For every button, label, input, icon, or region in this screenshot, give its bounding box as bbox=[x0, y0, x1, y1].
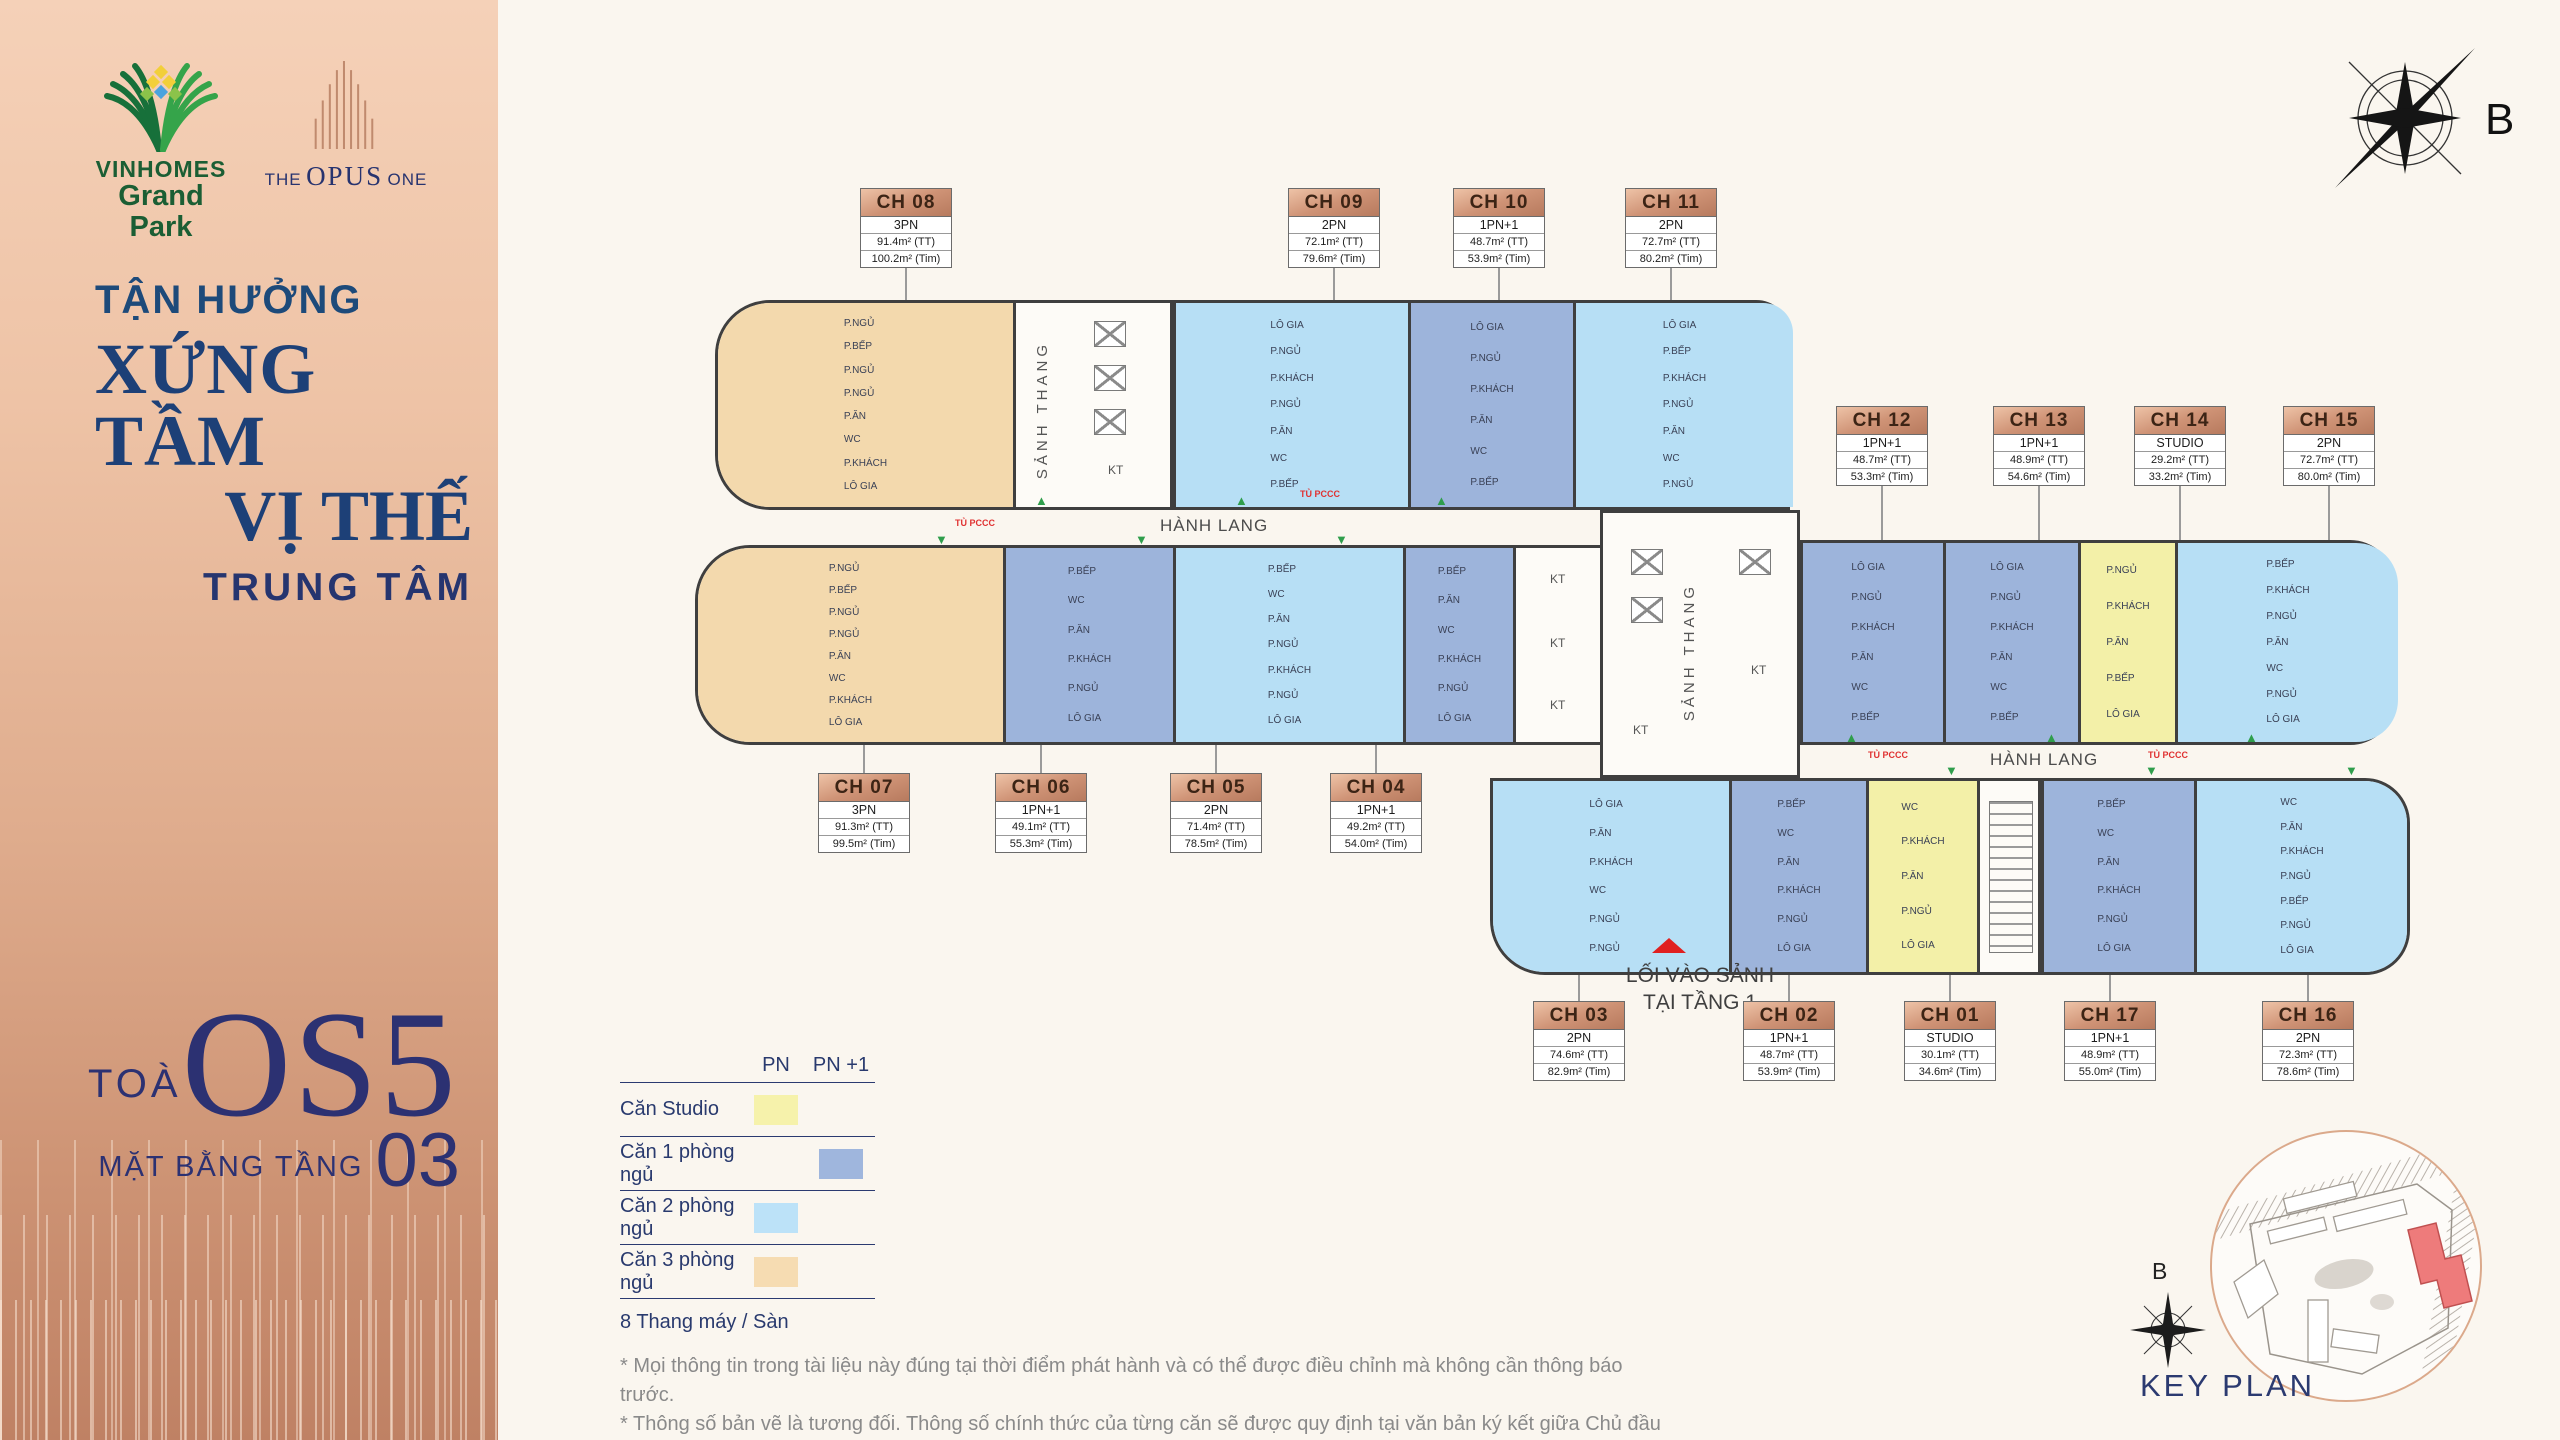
room-label: LÔ GIA bbox=[1470, 322, 1513, 333]
door-marker-icon: ▲ bbox=[1435, 494, 1448, 507]
core-central-lobby: SẢNH THANG KT KT bbox=[1600, 510, 1800, 778]
legend-row-2pn: Căn 2 phòng ngủ bbox=[620, 1191, 875, 1245]
unit-area-tim: 33.2m² (Tim) bbox=[2135, 469, 2225, 485]
door-marker-icon: ▲ bbox=[1035, 494, 1048, 507]
legend-row-3pn: Căn 3 phòng ngủ bbox=[620, 1245, 875, 1299]
room-label: P.NGỦ bbox=[2266, 611, 2309, 622]
room-label: WC bbox=[2097, 828, 2140, 839]
room-label: P.KHÁCH bbox=[1990, 622, 2033, 633]
room-label: P.NGỦ bbox=[1068, 683, 1111, 694]
room-label: P.KHÁCH bbox=[1851, 622, 1894, 633]
unit-area-tt: 49.1m² (TT) bbox=[996, 819, 1086, 836]
legend-col-pn: PN bbox=[745, 1054, 807, 1077]
room-label: P.NGỦ bbox=[1268, 690, 1311, 701]
shaft-label: KT bbox=[1550, 636, 1565, 650]
unit-area-tt: 72.7m² (TT) bbox=[2284, 452, 2374, 469]
label-connector bbox=[2179, 482, 2181, 540]
unit-id: CH 13 bbox=[1994, 407, 2084, 435]
unit-label-ch09: CH 09 2PN 72.1m² (TT) 79.6m² (Tim) bbox=[1288, 188, 1380, 268]
door-marker-icon: ▼ bbox=[1135, 533, 1148, 546]
room-label: P.KHÁCH bbox=[829, 695, 872, 706]
two-bedroom-color-swatch bbox=[754, 1203, 798, 1233]
shaft-label: KT bbox=[1751, 663, 1766, 677]
keyplan bbox=[2210, 1130, 2482, 1402]
room-label: WC bbox=[2266, 663, 2309, 674]
vinhomes-logo: VINHOMES Grand Park bbox=[86, 52, 236, 242]
unit-area-tim: 78.6m² (Tim) bbox=[2263, 1064, 2353, 1080]
unit-ch15: P.BẾPP.KHÁCHP.NGỦP.ĂNWCP.NGỦLÔ GIA bbox=[2175, 543, 2398, 742]
room-label: P.NGỦ bbox=[1438, 683, 1481, 694]
entry-note-line1: LỐI VÀO SẢNH bbox=[1595, 962, 1805, 989]
room-label: P.BẾP bbox=[1268, 564, 1311, 575]
keyplan-north-label: B bbox=[2152, 1258, 2167, 1285]
room-label: P.BẾP bbox=[1990, 712, 2033, 723]
unit-id: CH 02 bbox=[1744, 1002, 1834, 1030]
room-label: P.BẾP bbox=[1851, 712, 1894, 723]
unit-area-tim: 53.3m² (Tim) bbox=[1837, 469, 1927, 485]
legend-label: Căn 3 phòng ngủ bbox=[620, 1249, 745, 1295]
room-label: LÔ GIA bbox=[1777, 943, 1820, 954]
room-label: P.BẾP bbox=[2280, 896, 2323, 907]
room-label: LÔ GIA bbox=[2280, 945, 2323, 956]
unit-ch10: LÔ GIAP.NGỦP.KHÁCHP.ĂNWCP.BẾP bbox=[1408, 303, 1573, 507]
unit-ch04: P.BẾPP.ĂNWCP.KHÁCHP.NGỦLÔ GIA bbox=[1403, 548, 1513, 742]
room-label: P.NGỦ bbox=[829, 629, 872, 640]
label-connector bbox=[2038, 482, 2040, 540]
wing-top-left: P.NGỦP.BẾPP.NGỦP.NGỦP.ĂNWCP.KHÁCHLÔ GIA … bbox=[715, 300, 1790, 510]
room-label: P.KHÁCH bbox=[1663, 373, 1706, 384]
unit-area-tt: 72.1m² (TT) bbox=[1289, 234, 1379, 251]
unit-area-tim: 82.9m² (Tim) bbox=[1534, 1064, 1624, 1080]
label-connector bbox=[1215, 745, 1217, 773]
unit-area-tim: 53.9m² (Tim) bbox=[1744, 1064, 1834, 1080]
tagline-line3: VỊ THẾ bbox=[95, 477, 473, 556]
room-label: P.KHÁCH bbox=[1438, 654, 1481, 665]
door-marker-icon: ▼ bbox=[2345, 764, 2358, 777]
unit-id: CH 17 bbox=[2065, 1002, 2155, 1030]
room-label: P.ĂN bbox=[1470, 415, 1513, 426]
unit-ch07: P.NGỦP.BẾPP.NGỦP.NGỦP.ĂNWCP.KHÁCHLÔ GIA bbox=[698, 548, 1003, 742]
lobby-label: SẢNH THANG bbox=[1681, 583, 1698, 721]
room-label: P.ĂN bbox=[1589, 828, 1632, 839]
room-label: P.ĂN bbox=[829, 651, 872, 662]
core-shafts-mid: KT KT KT bbox=[1513, 548, 1603, 742]
unit-id: CH 10 bbox=[1454, 189, 1544, 217]
room-label: P.BẾP bbox=[829, 585, 872, 596]
room-label: P.NGỦ bbox=[1268, 639, 1311, 650]
room-label: P.KHÁCH bbox=[2266, 585, 2309, 596]
elevator-icon bbox=[1739, 549, 1771, 575]
room-label: P.NGỦ bbox=[1663, 399, 1706, 410]
shaft-label: KT bbox=[1633, 723, 1648, 737]
label-connector bbox=[1578, 975, 1580, 1001]
room-label: WC bbox=[1777, 828, 1820, 839]
room-label: WC bbox=[1663, 453, 1706, 464]
lobby-label: SẢNH THANG bbox=[1034, 341, 1051, 479]
room-label: LÔ GIA bbox=[2106, 709, 2149, 720]
opus-tower-icon bbox=[291, 56, 401, 152]
sidebar-lines-decoration bbox=[0, 1300, 498, 1440]
unit-area-tt: 91.3m² (TT) bbox=[819, 819, 909, 836]
label-connector bbox=[2109, 975, 2111, 1001]
room-label: P.ĂN bbox=[2266, 637, 2309, 648]
floorplan-poster: VINHOMES Grand Park THE OPUS ONE TẬN HƯỞ… bbox=[0, 0, 2560, 1440]
disclaimer-line1: * Mọi thông tin trong tài liệu này đúng … bbox=[620, 1352, 1680, 1410]
unit-area-tim: 55.0m² (Tim) bbox=[2065, 1064, 2155, 1080]
room-label: P.ĂN bbox=[1268, 614, 1311, 625]
unit-ch14: P.NGỦP.KHÁCHP.ĂNP.BẾPLÔ GIA bbox=[2078, 543, 2175, 742]
unit-type: 2PN bbox=[1534, 1030, 1624, 1047]
opus-the: THE bbox=[265, 170, 302, 189]
room-label: P.BẾP bbox=[2266, 559, 2309, 570]
legend-label: Căn Studio bbox=[620, 1098, 745, 1121]
label-connector bbox=[1670, 264, 1672, 300]
tower-prefix: TOÀ bbox=[88, 1062, 182, 1129]
fire-cabinet-label: TỦ PCCC bbox=[1300, 489, 1340, 499]
legend-col-pn1: PN +1 bbox=[807, 1054, 875, 1077]
elevator-icon bbox=[1631, 549, 1663, 575]
unit-id: CH 11 bbox=[1626, 189, 1716, 217]
unit-type: STUDIO bbox=[2135, 435, 2225, 452]
keyplan-map bbox=[2212, 1132, 2480, 1400]
unit-ch08: P.NGỦP.BẾPP.NGỦP.NGỦP.ĂNWCP.KHÁCHLÔ GIA bbox=[718, 303, 1013, 507]
wing-mid-left: P.NGỦP.BẾPP.NGỦP.NGỦP.ĂNWCP.KHÁCHLÔ GIA … bbox=[695, 545, 1600, 745]
unit-id: CH 14 bbox=[2135, 407, 2225, 435]
room-label: WC bbox=[829, 673, 872, 684]
unit-type: 2PN bbox=[1289, 217, 1379, 234]
room-label: LÔ GIA bbox=[1851, 562, 1894, 573]
unit-ch12: LÔ GIAP.NGỦP.KHÁCHP.ĂNWCP.BẾP bbox=[1803, 543, 1943, 742]
vinhomes-name: VINHOMES bbox=[86, 157, 236, 181]
compass-icon: B bbox=[2325, 38, 2540, 198]
unit-label-ch05: CH 05 2PN 71.4m² (TT) 78.5m² (Tim) bbox=[1170, 773, 1262, 853]
room-label: WC bbox=[1470, 446, 1513, 457]
unit-label-ch12: CH 12 1PN+1 48.7m² (TT) 53.3m² (Tim) bbox=[1836, 406, 1928, 486]
unit-label-ch01: CH 01 STUDIO 30.1m² (TT) 34.6m² (Tim) bbox=[1904, 1001, 1996, 1081]
room-label: P.ĂN bbox=[1777, 857, 1820, 868]
room-label: LÔ GIA bbox=[2097, 943, 2140, 954]
unit-ch06: P.BẾPWCP.ĂNP.KHÁCHP.NGỦLÔ GIA bbox=[1003, 548, 1173, 742]
room-label: LÔ GIA bbox=[1990, 562, 2033, 573]
room-label: P.ĂN bbox=[1901, 871, 1944, 882]
unit-ch03: LÔ GIAP.ĂNP.KHÁCHWCP.NGỦP.NGỦ bbox=[1493, 781, 1729, 972]
room-label: P.NGỦ bbox=[844, 388, 887, 399]
unit-label-ch13: CH 13 1PN+1 48.9m² (TT) 54.6m² (Tim) bbox=[1993, 406, 2085, 486]
unit-area-tim: 55.3m² (Tim) bbox=[996, 836, 1086, 852]
room-label: P.NGỦ bbox=[1777, 914, 1820, 925]
room-label: P.ĂN bbox=[844, 411, 887, 422]
vinhomes-tree-icon bbox=[101, 52, 221, 152]
unit-id: CH 12 bbox=[1837, 407, 1927, 435]
elevator-icon bbox=[1094, 365, 1126, 391]
one-bedroom-color-swatch bbox=[819, 1149, 863, 1179]
room-label: P.NGỦ bbox=[2280, 871, 2323, 882]
room-label: P.KHÁCH bbox=[2106, 601, 2149, 612]
unit-area-tim: 99.5m² (Tim) bbox=[819, 836, 909, 852]
unit-type: 1PN+1 bbox=[996, 802, 1086, 819]
opus-one-logo: THE OPUS ONE bbox=[262, 56, 430, 192]
unit-id: CH 07 bbox=[819, 774, 909, 802]
unit-ch09: LÔ GIAP.NGỦP.KHÁCHP.NGỦP.ĂNWCP.BẾP bbox=[1173, 303, 1408, 507]
keyplan-compass-icon bbox=[2128, 1290, 2208, 1370]
room-label: P.NGỦ bbox=[1589, 914, 1632, 925]
unit-area-tim: 79.6m² (Tim) bbox=[1289, 251, 1379, 267]
unit-area-tim: 78.5m² (Tim) bbox=[1171, 836, 1261, 852]
legend-row-studio: Căn Studio bbox=[620, 1083, 875, 1137]
core-stairs-bottom bbox=[1977, 781, 2041, 972]
room-label: P.ĂN bbox=[1663, 426, 1706, 437]
disclaimer-line2: * Thông số bản vẽ là tương đối. Thông số… bbox=[620, 1410, 1680, 1440]
room-label: P.ĂN bbox=[1068, 625, 1111, 636]
room-label: P.NGỦ bbox=[1270, 399, 1313, 410]
room-label: P.BẾP bbox=[1663, 346, 1706, 357]
unit-label-ch03: CH 03 2PN 74.6m² (TT) 82.9m² (Tim) bbox=[1533, 1001, 1625, 1081]
room-label: P.KHÁCH bbox=[1589, 857, 1632, 868]
legend-label: Căn 1 phòng ngủ bbox=[620, 1141, 745, 1187]
door-marker-icon: ▲ bbox=[2045, 731, 2058, 744]
tower-title: TOÀ OS5 MẶT BẰNG TẦNG 03 bbox=[88, 1000, 460, 1192]
room-label: P.ĂN bbox=[2106, 637, 2149, 648]
fire-cabinet-label: TỦ PCCC bbox=[1868, 750, 1908, 760]
room-label: P.ĂN bbox=[1851, 652, 1894, 663]
unit-ch11: LÔ GIAP.BẾPP.KHÁCHP.NGỦP.ĂNWCP.NGỦ bbox=[1573, 303, 1793, 507]
unit-area-tim: 80.0m² (Tim) bbox=[2284, 469, 2374, 485]
room-label: LÔ GIA bbox=[2266, 714, 2309, 725]
unit-area-tt: 48.7m² (TT) bbox=[1744, 1047, 1834, 1064]
unit-type: 2PN bbox=[2263, 1030, 2353, 1047]
room-label: LÔ GIA bbox=[844, 481, 887, 492]
unit-type: 2PN bbox=[1626, 217, 1716, 234]
room-label: WC bbox=[1438, 625, 1481, 636]
unit-area-tt: 71.4m² (TT) bbox=[1171, 819, 1261, 836]
door-marker-icon: ▲ bbox=[1845, 731, 1858, 744]
room-label: WC bbox=[1268, 589, 1311, 600]
studio-color-swatch bbox=[754, 1095, 798, 1125]
room-label: P.NGỦ bbox=[2280, 920, 2323, 931]
unit-label-ch15: CH 15 2PN 72.7m² (TT) 80.0m² (Tim) bbox=[2283, 406, 2375, 486]
stairs-icon bbox=[1989, 801, 2033, 953]
unit-ch16: WCP.ĂNP.KHÁCHP.NGỦP.BẾPP.NGỦLÔ GIA bbox=[2194, 781, 2407, 972]
unit-type: 3PN bbox=[861, 217, 951, 234]
room-label: P.NGỦ bbox=[2106, 565, 2149, 576]
unit-area-tt: 49.2m² (TT) bbox=[1331, 819, 1421, 836]
room-label: P.ĂN bbox=[2280, 822, 2323, 833]
room-label: WC bbox=[2280, 797, 2323, 808]
shaft-label: KT bbox=[1550, 698, 1565, 712]
unit-label-ch04: CH 04 1PN+1 49.2m² (TT) 54.0m² (Tim) bbox=[1330, 773, 1422, 853]
unit-id: CH 03 bbox=[1534, 1002, 1624, 1030]
room-label: WC bbox=[1990, 682, 2033, 693]
room-label: P.NGỦ bbox=[1270, 346, 1313, 357]
room-label: P.ĂN bbox=[1990, 652, 2033, 663]
room-label: P.KHÁCH bbox=[2280, 846, 2323, 857]
room-label: WC bbox=[1589, 885, 1632, 896]
tagline-line4: TRUNG TÂM bbox=[95, 566, 473, 610]
wing-top-right: LÔ GIAP.NGỦP.KHÁCHP.ĂNWCP.BẾP LÔ GIAP.NG… bbox=[1800, 540, 2395, 745]
room-label: P.NGỦ bbox=[2097, 914, 2140, 925]
floor-label: MẶT BẰNG TẦNG bbox=[98, 1151, 363, 1192]
wing-bottom-right: LÔ GIAP.ĂNP.KHÁCHWCP.NGỦP.NGỦ P.BẾPWCP.Ă… bbox=[1490, 778, 2410, 975]
unit-type: STUDIO bbox=[1905, 1030, 1995, 1047]
unit-label-ch02: CH 02 1PN+1 48.7m² (TT) 53.9m² (Tim) bbox=[1743, 1001, 1835, 1081]
sidebar bbox=[0, 0, 498, 1440]
room-label: LÔ GIA bbox=[1268, 715, 1311, 726]
room-label: P.NGỦ bbox=[829, 563, 872, 574]
unit-id: CH 01 bbox=[1905, 1002, 1995, 1030]
unit-ch05: P.BẾPWCP.ĂNP.NGỦP.KHÁCHP.NGỦLÔ GIA bbox=[1173, 548, 1403, 742]
unit-id: CH 06 bbox=[996, 774, 1086, 802]
unit-ch17: P.BẾPWCP.ĂNP.KHÁCHP.NGỦLÔ GIA bbox=[2041, 781, 2194, 972]
tagline-line1: TẬN HƯỞNG bbox=[95, 278, 473, 323]
shaft-label: KT bbox=[1108, 463, 1123, 477]
corridor-label-top: HÀNH LANG bbox=[1160, 516, 1268, 536]
room-label: WC bbox=[1851, 682, 1894, 693]
core-lobby-top: SẢNH THANG KT bbox=[1013, 303, 1173, 507]
legend-row-1pn: Căn 1 phòng ngủ bbox=[620, 1137, 875, 1191]
fire-cabinet-label: TỦ PCCC bbox=[2148, 750, 2188, 760]
opus-one: ONE bbox=[388, 170, 428, 189]
compass-north-label: B bbox=[2485, 95, 2514, 144]
legend: PN PN +1 Căn Studio Căn 1 phòng ngủ Căn … bbox=[620, 1048, 875, 1334]
room-label: P.NGỦ bbox=[1589, 943, 1632, 954]
elevator-icon bbox=[1631, 597, 1663, 623]
door-marker-icon: ▼ bbox=[2145, 764, 2158, 777]
tower-name: OS5 bbox=[182, 1000, 458, 1129]
elevator-icon bbox=[1094, 409, 1126, 435]
door-marker-icon: ▲ bbox=[1235, 494, 1248, 507]
unit-area-tim: 100.2m² (Tim) bbox=[861, 251, 951, 267]
room-label: LÔ GIA bbox=[1270, 320, 1313, 331]
label-connector bbox=[2328, 482, 2330, 540]
unit-type: 1PN+1 bbox=[1837, 435, 1927, 452]
door-marker-icon: ▼ bbox=[935, 533, 948, 546]
unit-type: 1PN+1 bbox=[1331, 802, 1421, 819]
room-label: P.BẾP bbox=[844, 341, 887, 352]
unit-id: CH 08 bbox=[861, 189, 951, 217]
door-marker-icon: ▼ bbox=[1335, 533, 1348, 546]
unit-ch13: LÔ GIAP.NGỦP.KHÁCHP.ĂNWCP.BẾP bbox=[1943, 543, 2078, 742]
corridor-label-right: HÀNH LANG bbox=[1990, 750, 2098, 770]
unit-label-ch06: CH 06 1PN+1 49.1m² (TT) 55.3m² (Tim) bbox=[995, 773, 1087, 853]
label-connector bbox=[1949, 975, 1951, 1001]
unit-id: CH 05 bbox=[1171, 774, 1261, 802]
unit-label-ch11: CH 11 2PN 72.7m² (TT) 80.2m² (Tim) bbox=[1625, 188, 1717, 268]
unit-type: 1PN+1 bbox=[1454, 217, 1544, 234]
label-connector bbox=[1881, 482, 1883, 540]
unit-area-tim: 80.2m² (Tim) bbox=[1626, 251, 1716, 267]
compass-rose: B bbox=[2325, 38, 2540, 198]
room-label: P.NGỦ bbox=[1470, 353, 1513, 364]
elevator-icon bbox=[1094, 321, 1126, 347]
opus-one-wordmark: THE OPUS ONE bbox=[262, 161, 430, 192]
room-label: P.BẾP bbox=[2097, 799, 2140, 810]
room-label: LÔ GIA bbox=[1663, 320, 1706, 331]
unit-area-tt: 48.9m² (TT) bbox=[2065, 1047, 2155, 1064]
label-connector bbox=[1333, 264, 1335, 300]
unit-type: 1PN+1 bbox=[2065, 1030, 2155, 1047]
unit-area-tt: 48.9m² (TT) bbox=[1994, 452, 2084, 469]
unit-type: 2PN bbox=[2284, 435, 2374, 452]
room-label: P.BẾP bbox=[1470, 477, 1513, 488]
room-label: P.KHÁCH bbox=[1777, 885, 1820, 896]
label-connector bbox=[1040, 745, 1042, 773]
room-label: P.KHÁCH bbox=[1470, 384, 1513, 395]
room-label: P.ĂN bbox=[2097, 857, 2140, 868]
elevator-note: 8 Thang máy / Sàn bbox=[620, 1311, 875, 1334]
unit-type: 3PN bbox=[819, 802, 909, 819]
room-label: WC bbox=[1270, 453, 1313, 464]
unit-label-ch08: CH 08 3PN 91.4m² (TT) 100.2m² (Tim) bbox=[860, 188, 952, 268]
legend-header: PN PN +1 bbox=[620, 1048, 875, 1083]
unit-area-tim: 54.0m² (Tim) bbox=[1331, 836, 1421, 852]
room-label: LÔ GIA bbox=[829, 717, 872, 728]
unit-id: CH 15 bbox=[2284, 407, 2374, 435]
room-label: P.NGỦ bbox=[1901, 906, 1944, 917]
room-label: LÔ GIA bbox=[1068, 713, 1111, 724]
unit-id: CH 16 bbox=[2263, 1002, 2353, 1030]
unit-label-ch10: CH 10 1PN+1 48.7m² (TT) 53.9m² (Tim) bbox=[1453, 188, 1545, 268]
room-label: P.ĂN bbox=[1270, 426, 1313, 437]
room-label: P.NGỦ bbox=[2266, 689, 2309, 700]
label-connector bbox=[2307, 975, 2309, 1001]
unit-area-tt: 29.2m² (TT) bbox=[2135, 452, 2225, 469]
unit-ch02: P.BẾPWCP.ĂNP.KHÁCHP.NGỦLÔ GIA bbox=[1729, 781, 1866, 972]
unit-id: CH 09 bbox=[1289, 189, 1379, 217]
label-connector bbox=[1375, 745, 1377, 773]
unit-area-tt: 48.7m² (TT) bbox=[1454, 234, 1544, 251]
room-label: WC bbox=[1068, 595, 1111, 606]
room-label: P.NGỦ bbox=[1663, 479, 1706, 490]
unit-type: 1PN+1 bbox=[1994, 435, 2084, 452]
tagline-line2: XỨNG TẦM bbox=[95, 333, 473, 477]
unit-area-tim: 54.6m² (Tim) bbox=[1994, 469, 2084, 485]
vinhomes-subname: Grand Park bbox=[86, 181, 236, 242]
room-label: P.BẾP bbox=[1068, 566, 1111, 577]
unit-area-tt: 48.7m² (TT) bbox=[1837, 452, 1927, 469]
entry-arrow-icon bbox=[1652, 938, 1686, 953]
room-label: P.NGỦ bbox=[844, 318, 887, 329]
room-label: P.KHÁCH bbox=[1270, 373, 1313, 384]
keyplan-title: KEY PLAN bbox=[2140, 1368, 2315, 1404]
unit-label-ch14: CH 14 STUDIO 29.2m² (TT) 33.2m² (Tim) bbox=[2134, 406, 2226, 486]
disclaimer: * Mọi thông tin trong tài liệu này đúng … bbox=[620, 1352, 1680, 1440]
legend-label: Căn 2 phòng ngủ bbox=[620, 1195, 745, 1241]
unit-ch01: WCP.KHÁCHP.ĂNP.NGỦLÔ GIA bbox=[1866, 781, 1977, 972]
unit-label-ch17: CH 17 1PN+1 48.9m² (TT) 55.0m² (Tim) bbox=[2064, 1001, 2156, 1081]
room-label: P.BẾP bbox=[1438, 566, 1481, 577]
door-marker-icon: ▼ bbox=[1945, 764, 1958, 777]
room-label: P.BẾP bbox=[2106, 673, 2149, 684]
room-label: P.NGỦ bbox=[1851, 592, 1894, 603]
room-label: WC bbox=[844, 434, 887, 445]
unit-area-tim: 53.9m² (Tim) bbox=[1454, 251, 1544, 267]
three-bedroom-color-swatch bbox=[754, 1257, 798, 1287]
room-label: LÔ GIA bbox=[1438, 713, 1481, 724]
unit-area-tt: 72.7m² (TT) bbox=[1626, 234, 1716, 251]
unit-label-ch07: CH 07 3PN 91.3m² (TT) 99.5m² (Tim) bbox=[818, 773, 910, 853]
floor-number: 03 bbox=[375, 1131, 460, 1192]
room-label: P.KHÁCH bbox=[1068, 654, 1111, 665]
room-label: P.NGỦ bbox=[829, 607, 872, 618]
unit-area-tt: 30.1m² (TT) bbox=[1905, 1047, 1995, 1064]
fire-cabinet-label: TỦ PCCC bbox=[955, 518, 995, 528]
room-label: P.KHÁCH bbox=[1268, 665, 1311, 676]
label-connector bbox=[1498, 264, 1500, 300]
unit-type: 1PN+1 bbox=[1744, 1030, 1834, 1047]
tagline: TẬN HƯỞNG XỨNG TẦM VỊ THẾ TRUNG TÂM bbox=[95, 278, 473, 610]
unit-area-tim: 34.6m² (Tim) bbox=[1905, 1064, 1995, 1080]
door-marker-icon: ▲ bbox=[2245, 731, 2258, 744]
